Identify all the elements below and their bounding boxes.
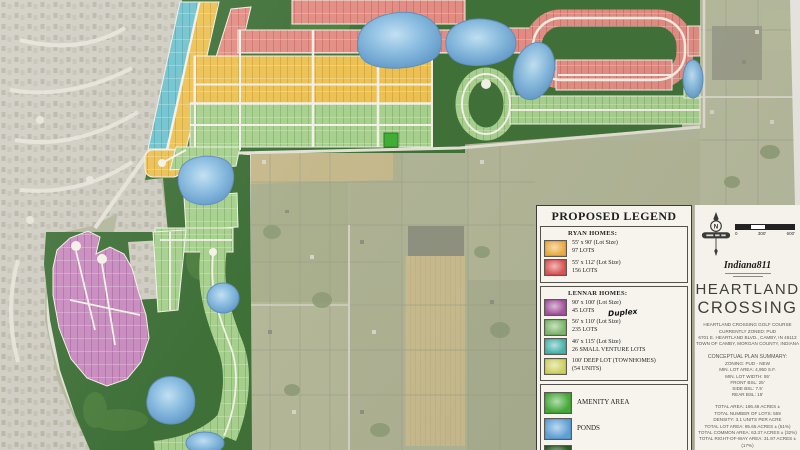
scale-bar: 0 300' 600' [735, 224, 795, 236]
area-label: AMENITY AREA [577, 398, 629, 407]
summary-heading: CONCEPTUAL PLAN SUMMARY: [695, 354, 800, 360]
lot-count-label: 45 LOTS [572, 308, 595, 314]
legend-item: 46' x 115' (Lot Size) 26 SMALL VENTURE L… [544, 338, 684, 355]
lot-count-label: 26 SMALL VENTURE LOTS [572, 347, 646, 353]
legend-swatch-lennar-46x115 [544, 338, 567, 355]
summary-lines: ZONING: PUD - NEW MIN. LOT AREA: 4,950 S… [695, 361, 800, 398]
legend-swatch-ponds [544, 418, 572, 440]
plan-title-line2: CROSSING [695, 299, 800, 318]
plan-title-line1: HEARTLAND [695, 282, 800, 299]
lot-size-label: 55' x 112' (Lot Size) [572, 260, 621, 266]
legend-swatch-lennar-56x110 [544, 319, 567, 336]
lot-size-label: 56' x 110' (Lot Size) [572, 319, 621, 325]
legend-heading-ryan: RYAN HOMES: [568, 230, 684, 237]
legend-panel: PROPOSED LEGEND RYAN HOMES: 55' x 90' (L… [536, 205, 692, 450]
legend-title: PROPOSED LEGEND [540, 209, 688, 224]
lot-size-label: 46' x 115' (Lot Size) [572, 339, 621, 345]
legend-item: PONDS [544, 418, 684, 440]
legend-section-lennar: LENNAR HOMES: 90' x 100' (Lot Size) 45 L… [540, 286, 688, 382]
scale-tick: 0 [735, 231, 738, 236]
legend-item: 55' x 90' (Lot Size) 97 LOTS [544, 240, 684, 257]
area-label: PONDS [577, 424, 600, 433]
scale-tick: 600' [787, 231, 795, 236]
legend-section-areas: AMENITY AREA PONDS GRASS [540, 384, 688, 450]
lot-count-label: 156 LOTS [572, 268, 598, 274]
plan-address: HEARTLAND CROSSING GOLF COURSE CURRENTLY… [695, 322, 800, 347]
legend-item: 55' x 112' (Lot Size) 156 LOTS [544, 259, 684, 276]
site-plan-photo: PROPOSED LEGEND RYAN HOMES: 55' x 90' (L… [0, 0, 800, 450]
legend-item: GRASS [544, 445, 684, 450]
lot-size-label: 100' DEEP LOT (TOWNHOMES) [572, 358, 656, 364]
lot-size-label: 90' x 100' (Lot Size) [572, 300, 621, 306]
legend-section-ryan: RYAN HOMES: 55' x 90' (Lot Size) 97 LOTS… [540, 226, 688, 283]
totals-lines: TOTAL AREA: 186.46 ACRES ± TOTAL NUMBER … [695, 404, 800, 450]
lot-count-label: (54 UNITS) [572, 366, 601, 372]
scale-tick: 300' [758, 231, 766, 236]
legend-item: 100' DEEP LOT (TOWNHOMES) (54 UNITS) [544, 358, 684, 375]
legend-swatch-amenity [544, 392, 572, 414]
lot-count-label: 97 LOTS [572, 248, 595, 254]
legend-swatch-lennar-90x100 [544, 299, 567, 316]
legend-heading-lennar: LENNAR HOMES: [568, 290, 684, 297]
titleblock-panel: N 0 300' 600' Indiana811 HEARTLAND CROSS… [694, 205, 800, 450]
legend-item: AMENITY AREA [544, 392, 684, 414]
legend-swatch-grass [544, 445, 572, 450]
legend-swatch-lennar-townhomes [544, 358, 567, 375]
north-arrow-icon: N [701, 209, 731, 259]
lot-size-label: 55' x 90' (Lot Size) [572, 240, 618, 246]
legend-item: 56' x 110' (Lot Size) 235 LOTS [544, 319, 684, 336]
north-label: N [714, 223, 719, 230]
lot-count-label: 235 LOTS [572, 327, 598, 333]
legend-item: 90' x 100' (Lot Size) 45 LOTS Duplex [544, 299, 684, 316]
legend-swatch-ryan-55x112 [544, 259, 567, 276]
legend-swatch-ryan-55x90 [544, 240, 567, 257]
indiana811-logo: Indiana811 [695, 261, 800, 277]
handwritten-note: Duplex [608, 307, 638, 319]
